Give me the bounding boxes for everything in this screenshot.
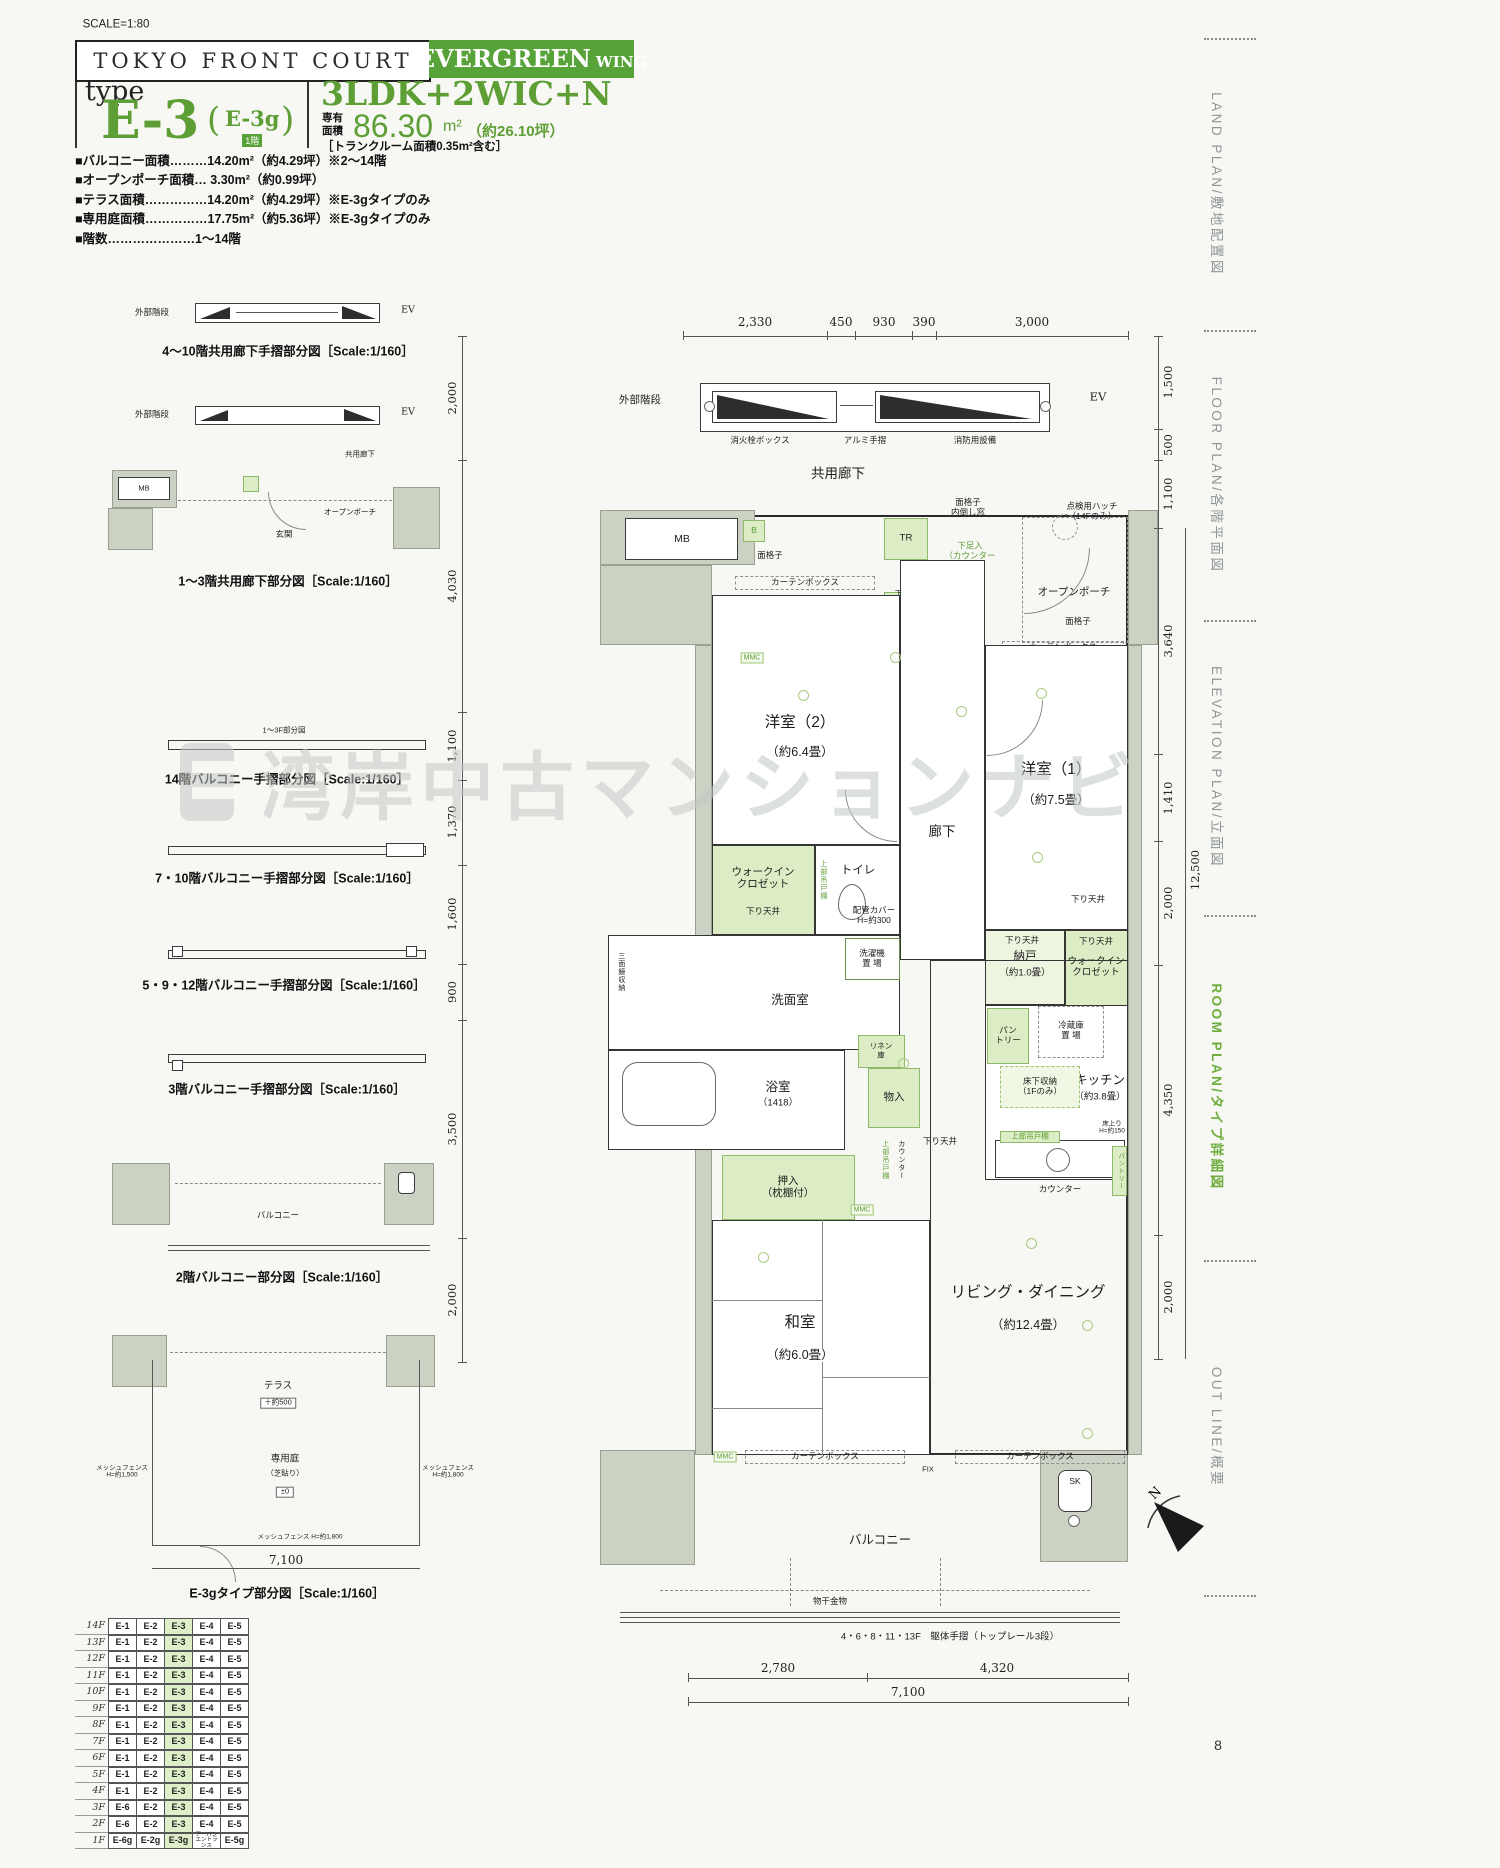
d5-caption: 5・9・12階バルコニー手摺部分図［Scale:1/160］ [142, 975, 425, 994]
unit-cell-7F-0: E-1 [108, 1734, 137, 1751]
type-alt-stack: E-3g 1階 [225, 106, 279, 149]
d6-caption: 3階バルコニー手摺部分図［Scale:1/160］ [168, 1079, 405, 1098]
floor-row-3F: 3FE-6E-2E-3E-4E-5 [75, 1800, 249, 1817]
floor-row-4F: 4FE-1E-2E-3E-4E-5 [75, 1783, 249, 1800]
lattice-tilt-label: 面格子 内倒し窓 [951, 498, 985, 518]
sidebar-tab-out-line[interactable]: OUT LINE/概要 [1208, 1367, 1228, 1487]
dim-left-7: 3,500 [445, 1113, 459, 1146]
mmc3-label: MMC [714, 1451, 737, 1462]
d2-stairs-label: 外部階段 [135, 410, 169, 420]
area-unit: m² [443, 118, 462, 136]
unit-cell-6F-3: E-4 [192, 1750, 221, 1767]
sagari-nando-label: 下り天井 [1005, 936, 1039, 946]
area-label: 専有 面積 [322, 112, 343, 137]
unit-cell-9F-4: E-5 [220, 1701, 249, 1718]
sidebar-tab-floor-plan[interactable]: FLOOR PLAN/各階平面図 [1208, 377, 1228, 574]
fire-equip-label: 消防用設備 [954, 436, 997, 446]
floor-row-12F: 12FE-1E-2E-3E-4E-5 [75, 1651, 249, 1668]
unit-cell-3F-0: E-6 [108, 1800, 137, 1817]
washer-label: 洗濯機 置 場 [859, 949, 885, 969]
brochure-page: SCALE=1:80 TOKYO FRONT COURT EVERGREEN W… [0, 0, 1500, 1868]
dim-right-4: 3,640 [1161, 625, 1175, 658]
unit-cell-5F-2: E-3 [164, 1767, 193, 1784]
dim-left-1: 2,000 [445, 382, 459, 415]
unit-cell-9F-3: E-4 [192, 1701, 221, 1718]
type-divider-right [307, 82, 309, 148]
d8-dim: 7,100 [269, 1553, 303, 1567]
floor-row-label: 12F [75, 1651, 109, 1668]
d7-caption: 2階バルコニー部分図［Scale:1/160］ [176, 1267, 388, 1286]
unit-cell-7F-3: E-4 [192, 1734, 221, 1751]
floor-row-label: 9F [75, 1701, 109, 1718]
cupboard-counter-label: 上部吊戸棚 [881, 1140, 889, 1180]
wing-suffix: WING [596, 53, 646, 71]
unit-cell-12F-4: E-5 [220, 1651, 249, 1668]
floor-row-1F: 1FE-6gE-2gE-3gアーバン エントランスE-5g [75, 1833, 249, 1850]
monohoshi-label: 物干金物 [813, 1597, 847, 1607]
living-size-label: （約12.4畳） [991, 1318, 1065, 1332]
d2-caption: 1〜3階共用廊下部分図［Scale:1/160］ [178, 571, 398, 590]
floor-row-label: 8F [75, 1717, 109, 1734]
unit-cell-9F-0: E-1 [108, 1701, 137, 1718]
unit-cell-2F-3: E-4 [192, 1816, 221, 1833]
dim-top-2: 450 [830, 315, 853, 329]
unit-cell-12F-3: E-4 [192, 1651, 221, 1668]
sidebar-separator [1204, 38, 1256, 40]
unit-cell-12F-1: E-2 [136, 1651, 165, 1668]
project-title: TOKYO FRONT COURT [93, 49, 412, 73]
d2-porch-label: オープンポーチ [324, 509, 376, 518]
unit-cell-3F-4: E-5 [220, 1800, 249, 1817]
pipe-cover-label: 配管カバー H=約300 [853, 906, 896, 926]
unit-cell-8F-1: E-2 [136, 1717, 165, 1734]
sk-label: SK [1069, 1477, 1080, 1487]
dim-right-3: 1,100 [1161, 478, 1175, 511]
spec-item-0: ■バルコニー面積………14.20m²（約4.29坪）※2〜14階 [75, 152, 431, 171]
unit-cell-9F-1: E-2 [136, 1701, 165, 1718]
mirror-cabinet-label: 三面鏡収納 [617, 952, 625, 992]
unit-cell-11F-0: E-1 [108, 1668, 137, 1685]
scale-note: SCALE=1:80 [83, 18, 150, 31]
dim-left-4: 1,370 [445, 806, 459, 839]
d8-garden-label: 専用庭 [271, 1455, 300, 1466]
lattice2-label: 面格子 [1065, 617, 1091, 627]
bedroom2-label: 洋室（2） [765, 714, 836, 732]
floor-row-7F: 7FE-1E-2E-3E-4E-5 [75, 1734, 249, 1751]
floor-row-6F: 6FE-1E-2E-3E-4E-5 [75, 1750, 249, 1767]
unit-cell-10F-1: E-2 [136, 1684, 165, 1701]
unit-cell-10F-3: E-4 [192, 1684, 221, 1701]
unit-cell-1F-3: アーバン エントランス [192, 1833, 221, 1850]
unit-cell-13F-2: E-3 [164, 1635, 193, 1652]
d8-fence-bottom: メッシュフェンス H=約1,800 [258, 1533, 343, 1540]
unit-cell-9F-2: E-3 [164, 1701, 193, 1718]
unit-cell-4F-3: E-4 [192, 1783, 221, 1800]
floor-row-label: 10F [75, 1684, 109, 1701]
unit-cell-5F-0: E-1 [108, 1767, 137, 1784]
washitsu-size-label: （約6.0畳） [764, 1348, 835, 1362]
dim-bottom-2: 4,320 [980, 1661, 1014, 1675]
sidebar-tab-elevation-plan[interactable]: ELEVATION PLAN/立面図 [1208, 666, 1228, 868]
floor-row-label: 3F [75, 1800, 109, 1817]
tr-label: TR [900, 534, 913, 545]
bedroom2-size: （約6.4畳） [766, 745, 833, 759]
unit-cell-10F-0: E-1 [108, 1684, 137, 1701]
mmc1-label: MMC [741, 652, 764, 663]
dim-left-3: 1,100 [445, 730, 459, 763]
unit-cell-3F-1: E-2 [136, 1800, 165, 1817]
unit-cell-1F-4: E-5g [220, 1833, 249, 1850]
unit-cell-7F-1: E-2 [136, 1734, 165, 1751]
unit-cell-7F-2: E-3 [164, 1734, 193, 1751]
wing-title-box: EVERGREEN WING [429, 40, 634, 78]
type-block: type E-3 ( E-3g 1階 ) 3LDK+2WIC+N 専有 面積 8… [75, 82, 635, 150]
d8-caption: E-3gタイプ部分図［Scale:1/160］ [189, 1583, 384, 1602]
unit-cell-8F-2: E-3 [164, 1717, 193, 1734]
floor-row-label: 14F [75, 1618, 109, 1635]
unit-cell-5F-3: E-4 [192, 1767, 221, 1784]
unit-cell-14F-2: E-3 [164, 1618, 193, 1635]
floor-row-5F: 5FE-1E-2E-3E-4E-5 [75, 1767, 249, 1784]
unit-cell-12F-2: E-3 [164, 1651, 193, 1668]
type-divider-left [75, 82, 77, 148]
compass-icon: N [1138, 1486, 1214, 1562]
sagari-wic-right-label: 下り天井 [1079, 937, 1113, 947]
wic-left-label: ウォークイン クロゼット [732, 866, 795, 890]
common-corridor-label: 共用廊下 [811, 466, 865, 482]
spec-list: ■バルコニー面積………14.20m²（約4.29坪）※2〜14階■オープンポーチ… [75, 152, 431, 249]
floor-row-11F: 11FE-1E-2E-3E-4E-5 [75, 1668, 249, 1685]
mmc2-label: MMC [851, 1204, 874, 1215]
cupboard-toilet-label: 上部吊戸棚 [819, 860, 827, 900]
sidebar-separator [1204, 915, 1256, 917]
unit-cell-6F-0: E-1 [108, 1750, 137, 1767]
alumi-handrail-label: アルミ手摺 [844, 436, 886, 446]
rail-note-label: 4・6・8・11・13F 躯体手摺（トップレール3段） [841, 1633, 1059, 1644]
dim-right-6: 2,000 [1161, 887, 1175, 920]
floor-type-table: 14FE-1E-2E-3E-4E-513FE-1E-2E-3E-4E-512FE… [75, 1618, 249, 1849]
unit-cell-5F-4: E-5 [220, 1767, 249, 1784]
unit-cell-5F-1: E-2 [136, 1767, 165, 1784]
d1-ev-label: EV [401, 306, 415, 317]
floor-row-label: 4F [75, 1783, 109, 1800]
balcony-label: バルコニー [849, 1533, 911, 1547]
spec-item-4: ■階数…………………1〜14階 [75, 230, 431, 249]
unit-cell-12F-0: E-1 [108, 1651, 137, 1668]
hall-label: 廊下 [929, 824, 956, 840]
unit-cell-11F-4: E-5 [220, 1668, 249, 1685]
floor-row-label: 13F [75, 1635, 109, 1652]
lattice1-label: 面格子 [757, 551, 783, 561]
monoire-label: 物入 [884, 1091, 905, 1103]
floor-row-8F: 8FE-1E-2E-3E-4E-5 [75, 1717, 249, 1734]
unit-cell-14F-1: E-2 [136, 1618, 165, 1635]
curtain1-label: カーテンボックス [771, 578, 839, 588]
unit-cell-2F-0: E-6 [108, 1816, 137, 1833]
unit-cell-13F-3: E-4 [192, 1635, 221, 1652]
b-label: B [751, 526, 757, 536]
floor-row-2F: 2FE-6E-2E-3E-4E-5 [75, 1816, 249, 1833]
floor-row-10F: 10FE-1E-2E-3E-4E-5 [75, 1684, 249, 1701]
floor-row-13F: 13FE-1E-2E-3E-4E-5 [75, 1635, 249, 1652]
dim-right-7: 4,350 [1161, 1084, 1175, 1117]
toilet-label: トイレ [841, 864, 876, 877]
d8-garden-note: （芝貼り） [266, 1470, 304, 1479]
dim-right-2: 500 [1161, 434, 1175, 456]
d8-fence-right: メッシュフェンス H=約1,800 [422, 1465, 474, 1480]
sidebar-separator [1204, 330, 1256, 332]
type-alt-paren-close: ) [281, 100, 294, 140]
dim-right-1: 1,500 [1161, 366, 1175, 399]
d8-fence-left: メッシュフェンス H=約1,500 [96, 1465, 148, 1480]
unit-cell-11F-1: E-2 [136, 1668, 165, 1685]
dim-left-2: 4,030 [445, 570, 459, 603]
dim-bottom-1: 2,780 [761, 1661, 795, 1675]
curtain3-label: カーテンボックス [791, 1452, 859, 1462]
unit-cell-1F-0: E-6g [108, 1833, 137, 1850]
dim-left-6: 900 [445, 981, 459, 1003]
senmen-label: 洗面室 [771, 993, 809, 1007]
d8-terrace-label: テラス [264, 1382, 292, 1393]
sagari-wic-left-label: 下り天井 [746, 907, 780, 917]
wing-name: EVERGREEN [417, 44, 591, 73]
sidebar-separator [1204, 1260, 1256, 1262]
spec-item-3: ■専用庭面積……………17.75m²（約5.36坪）※E-3gタイプのみ [75, 210, 431, 229]
curtain4-label: カーテンボックス [1006, 1452, 1074, 1462]
spec-item-1: ■オープンポーチ面積… 3.30m²（約0.99坪） [75, 171, 431, 190]
dim-top-1: 2,330 [738, 315, 772, 329]
ev-label: EV [1090, 390, 1107, 403]
d7-balcony-label: バルコニー [257, 1211, 299, 1221]
d8-terrace-level: ＋約500 [260, 1398, 296, 1409]
dim-right-8: 2,000 [1161, 1281, 1175, 1314]
floor-row-9F: 9FE-1E-2E-3E-4E-5 [75, 1701, 249, 1718]
unit-cell-4F-0: E-1 [108, 1783, 137, 1800]
d2-ev-label: EV [401, 408, 415, 419]
sidebar-separator [1204, 1595, 1256, 1597]
unit-cell-2F-1: E-2 [136, 1816, 165, 1833]
dim-right-5: 1,410 [1161, 782, 1175, 815]
type-name: E-3 [101, 90, 199, 151]
unit-cell-14F-0: E-1 [108, 1618, 137, 1635]
dim-bottom-total: 7,100 [891, 1685, 925, 1699]
sagari-yo1-label: 下り天井 [1071, 895, 1105, 905]
d8-garden-level: ±0 [276, 1487, 294, 1498]
bath-size-label: （1418） [758, 1099, 798, 1110]
unit-cell-4F-4: E-5 [220, 1783, 249, 1800]
hydrant-label: 消火栓ボックス [730, 436, 789, 446]
bedroom1-label: 洋室（1） [1021, 761, 1092, 779]
floor-row-label: 1F [75, 1833, 109, 1850]
floor-row-label: 5F [75, 1767, 109, 1784]
d2-genkan-label: 玄関 [275, 530, 292, 540]
floor-row-label: 6F [75, 1750, 109, 1767]
dim-left-5: 1,600 [445, 898, 459, 931]
sidebar-separator [1204, 620, 1256, 622]
unit-cell-11F-3: E-4 [192, 1668, 221, 1685]
floor-row-14F: 14FE-1E-2E-3E-4E-5 [75, 1618, 249, 1635]
unit-cell-2F-2: E-3 [164, 1816, 193, 1833]
type-alt-floor: 1階 [242, 134, 262, 147]
compass-n-label: N [1146, 1486, 1165, 1503]
sidebar-tab-land-plan[interactable]: LAND PLAN/敷地配置図 [1208, 92, 1228, 276]
floor-row-label: 11F [75, 1668, 109, 1685]
d2-mb-label: MB [138, 485, 149, 494]
counter-vert-label: カウンター [897, 1140, 905, 1180]
dim-right-total: 12,500 [1188, 850, 1202, 890]
bath-label: 浴室 [765, 1080, 790, 1094]
d2-corridor-label: 共用廊下 [345, 451, 375, 460]
unit-cell-11F-2: E-3 [164, 1668, 193, 1685]
d1-caption: 4〜10階共用廊下手摺部分図［Scale:1/160］ [162, 341, 413, 360]
unit-cell-3F-3: E-4 [192, 1800, 221, 1817]
fix-label: FIX [922, 1466, 934, 1475]
linen-label: リネン 庫 [870, 1042, 893, 1059]
unit-cell-14F-3: E-4 [192, 1618, 221, 1635]
unit-cell-6F-4: E-5 [220, 1750, 249, 1767]
unit-cell-3F-2: E-3 [164, 1800, 193, 1817]
d3-caption: 14階バルコニー手摺部分図［Scale:1/160］ [165, 769, 409, 788]
unit-cell-1F-1: E-2g [136, 1833, 165, 1850]
unit-cell-13F-1: E-2 [136, 1635, 165, 1652]
unit-cell-10F-2: E-3 [164, 1684, 193, 1701]
stairs-label: 外部階段 [619, 394, 661, 406]
unit-cell-14F-4: E-5 [220, 1618, 249, 1635]
unit-cell-1F-2: E-3g [164, 1833, 193, 1850]
d4-caption: 7・10階バルコニー手摺部分図［Scale:1/160］ [155, 868, 419, 887]
floor-row-label: 2F [75, 1816, 109, 1833]
sidebar-tab-room-plan[interactable]: ROOM PLAN/タイプ詳細図 [1208, 983, 1228, 1190]
type-alt-paren-open: ( [207, 100, 220, 140]
bedroom1-size: （約7.5畳） [1022, 793, 1089, 807]
d1-stairs-label: 外部階段 [135, 308, 169, 318]
unit-cell-8F-0: E-1 [108, 1717, 137, 1734]
dim-top-3: 930 [873, 315, 896, 329]
washitsu-label: 和室 [782, 1314, 817, 1332]
unit-cell-8F-4: E-5 [220, 1717, 249, 1734]
spec-item-2: ■テラス面積……………14.20m²（約4.29坪）※E-3gタイプのみ [75, 191, 431, 210]
unit-cell-13F-0: E-1 [108, 1635, 137, 1652]
unit-cell-10F-4: E-5 [220, 1684, 249, 1701]
unit-cell-6F-2: E-3 [164, 1750, 193, 1767]
unit-cell-6F-1: E-2 [136, 1750, 165, 1767]
unit-cell-7F-4: E-5 [220, 1734, 249, 1751]
dim-top-5: 3,000 [1015, 315, 1049, 329]
unit-cell-13F-4: E-5 [220, 1635, 249, 1652]
porch-label: オープンポーチ [1038, 586, 1111, 598]
oshiire-label: 押入 （枕棚付） [762, 1175, 815, 1199]
dim-top-4: 390 [913, 315, 936, 329]
unit-cell-4F-2: E-3 [164, 1783, 193, 1800]
dim-left-8: 2,000 [445, 1284, 459, 1317]
type-alt: E-3g [225, 106, 279, 131]
unit-cell-2F-4: E-5 [220, 1816, 249, 1833]
living-label: リビング・ダイニング [950, 1284, 1105, 1302]
unit-cell-8F-3: E-4 [192, 1717, 221, 1734]
d3-note: 1〜3F部分図 [263, 727, 306, 736]
page-number: 8 [1214, 1737, 1222, 1753]
floor-row-label: 7F [75, 1734, 109, 1751]
mb-label: MB [674, 533, 690, 545]
unit-cell-4F-1: E-2 [136, 1783, 165, 1800]
